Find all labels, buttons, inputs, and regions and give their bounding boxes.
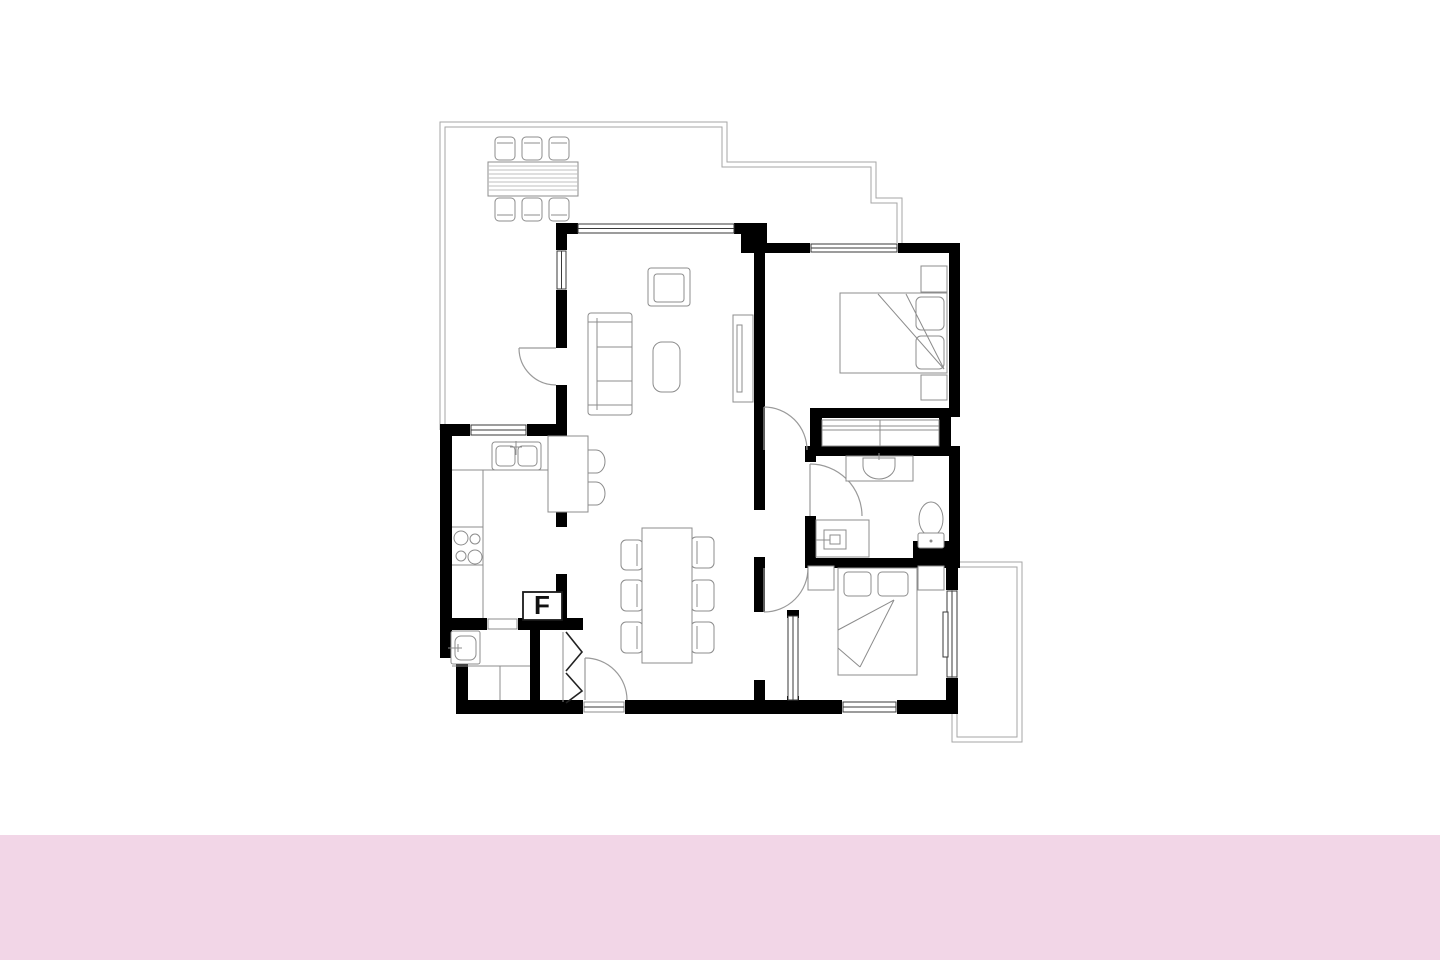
bedroom-2	[808, 566, 944, 675]
bathroom	[816, 453, 944, 557]
toilet	[918, 502, 944, 548]
living-top-window	[578, 224, 734, 233]
armchair	[648, 268, 690, 306]
entry-door	[585, 658, 627, 700]
entry-closet-bifold-doors	[563, 632, 582, 703]
laundry-opening	[488, 619, 517, 629]
dining-set	[621, 528, 714, 663]
bed-2	[838, 568, 917, 675]
living-room	[588, 268, 753, 415]
kitchen-window	[471, 425, 526, 435]
footer-band: FAM SEASCAPE	[0, 835, 1440, 960]
bedroom1-window	[811, 244, 897, 252]
bed-1	[840, 293, 947, 373]
stove	[452, 527, 483, 565]
fridge-label: F	[534, 590, 550, 620]
kitchen: F	[452, 436, 605, 620]
coffee-table	[653, 342, 680, 392]
entry-threshold	[584, 702, 624, 712]
nightstand	[921, 375, 947, 400]
bedroom2-door	[764, 568, 808, 612]
nightstand	[918, 566, 944, 590]
tv-unit	[733, 315, 753, 402]
dining-table	[642, 528, 692, 663]
terrace-door	[519, 348, 556, 385]
bathroom-sink	[846, 453, 913, 481]
floor-plan: F	[0, 0, 1440, 835]
terrace-dining-set	[488, 137, 578, 221]
page: F	[0, 0, 1440, 960]
bedroom2-terrace-outline	[952, 562, 1022, 742]
kitchen-sink	[492, 441, 541, 470]
shower	[816, 520, 869, 557]
kitchen-peninsula	[548, 436, 588, 512]
bar-stools	[588, 450, 605, 505]
bedroom2-terrace-door	[943, 591, 957, 677]
sofa	[588, 313, 632, 415]
nightstand	[921, 266, 947, 292]
bedroom1-door	[764, 407, 807, 450]
wardrobe	[822, 420, 939, 446]
floor-plan-area: F	[0, 0, 1440, 835]
bedroom2-internal-window	[788, 616, 798, 700]
fridge: F	[523, 590, 562, 620]
nightstand	[808, 566, 834, 590]
bedroom2-bottom-window	[843, 702, 896, 712]
bedroom-1	[822, 266, 947, 446]
living-left-window	[557, 251, 566, 289]
laundry-basin	[448, 631, 480, 664]
